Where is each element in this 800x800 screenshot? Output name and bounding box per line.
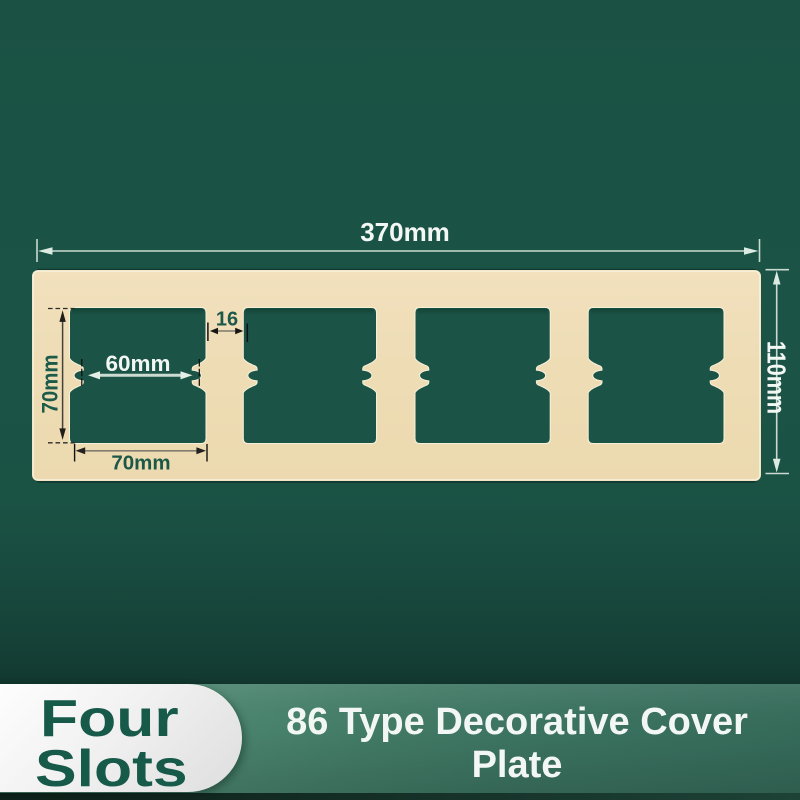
- svg-text:370mm: 370mm: [360, 217, 450, 247]
- svg-text:60mm: 60mm: [105, 351, 170, 376]
- svg-text:110mm: 110mm: [761, 341, 790, 414]
- svg-text:16: 16: [216, 309, 238, 331]
- svg-text:70mm: 70mm: [111, 452, 170, 475]
- svg-text:70mm: 70mm: [38, 354, 63, 413]
